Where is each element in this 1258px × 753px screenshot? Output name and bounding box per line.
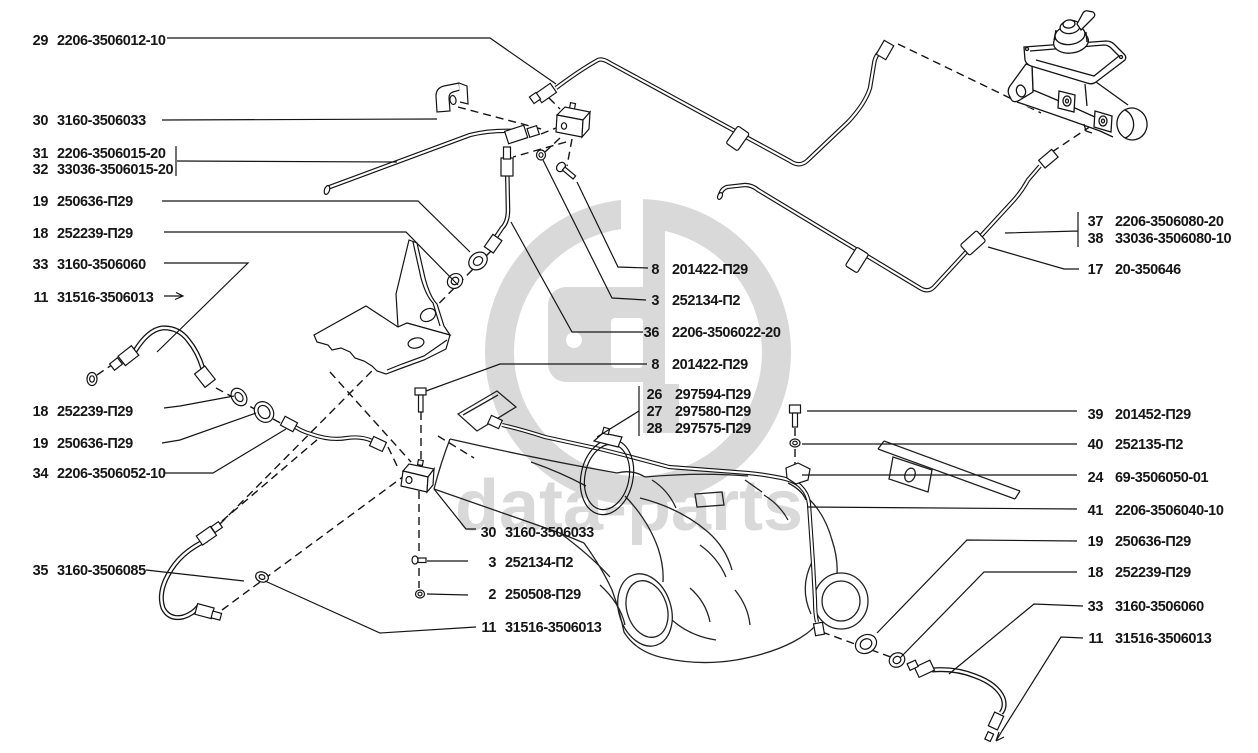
svg-text:33036-3506015-20: 33036-3506015-20	[57, 162, 173, 178]
svg-text:250636-П29: 250636-П29	[1115, 534, 1191, 550]
svg-text:8: 8	[651, 262, 659, 278]
svg-text:2: 2	[488, 587, 496, 603]
svg-text:11: 11	[481, 620, 496, 636]
svg-text:252135-П2: 252135-П2	[1115, 437, 1183, 453]
svg-text:2206-3506012-10: 2206-3506012-10	[57, 33, 166, 49]
svg-text:28: 28	[647, 421, 663, 437]
svg-text:201422-П29: 201422-П29	[672, 262, 748, 278]
svg-text:3160-3506060: 3160-3506060	[1115, 599, 1204, 615]
svg-text:26: 26	[647, 387, 663, 403]
svg-text:31516-3506013: 31516-3506013	[1115, 631, 1212, 647]
svg-text:2206-3506080-20: 2206-3506080-20	[1115, 214, 1224, 230]
svg-text:35: 35	[33, 563, 49, 579]
svg-text:297580-П29: 297580-П29	[675, 404, 751, 420]
svg-text:30: 30	[33, 113, 49, 129]
svg-text:2206-3506040-10: 2206-3506040-10	[1115, 503, 1224, 519]
svg-text:19: 19	[1088, 534, 1104, 550]
svg-text:33: 33	[1088, 599, 1104, 615]
svg-text:3160-3506033: 3160-3506033	[505, 525, 594, 541]
svg-text:30: 30	[481, 525, 497, 541]
svg-text:34: 34	[33, 466, 49, 482]
svg-text:20-350646: 20-350646	[1115, 262, 1181, 278]
svg-text:41: 41	[1088, 503, 1104, 519]
svg-text:36: 36	[644, 325, 660, 341]
svg-text:250508-П29: 250508-П29	[505, 587, 581, 603]
svg-text:250636-П29: 250636-П29	[57, 436, 133, 452]
svg-text:38: 38	[1088, 231, 1104, 247]
svg-text:27: 27	[647, 404, 663, 420]
svg-text:3: 3	[651, 293, 659, 309]
svg-text:33: 33	[33, 257, 49, 273]
svg-text:31516-3506013: 31516-3506013	[505, 620, 602, 636]
svg-text:201422-П29: 201422-П29	[672, 357, 748, 373]
svg-text:31516-3506013: 31516-3506013	[57, 290, 154, 306]
svg-text:3160-3506033: 3160-3506033	[57, 113, 146, 129]
svg-text:3160-3506085: 3160-3506085	[57, 563, 146, 579]
svg-text:2206-3506015-20: 2206-3506015-20	[57, 146, 166, 162]
svg-text:19: 19	[33, 194, 49, 210]
svg-text:252239-П29: 252239-П29	[57, 226, 133, 242]
svg-text:8: 8	[651, 357, 659, 373]
svg-text:2206-3506022-20: 2206-3506022-20	[672, 325, 781, 341]
svg-text:32: 32	[33, 162, 49, 178]
svg-text:11: 11	[1088, 631, 1103, 647]
svg-text:11: 11	[33, 290, 48, 306]
svg-text:33036-3506080-10: 33036-3506080-10	[1115, 231, 1231, 247]
svg-text:297575-П29: 297575-П29	[675, 421, 751, 437]
svg-text:18: 18	[33, 226, 49, 242]
svg-text:252239-П29: 252239-П29	[1115, 565, 1191, 581]
svg-text:40: 40	[1088, 437, 1104, 453]
svg-text:18: 18	[1088, 565, 1104, 581]
svg-text:18: 18	[33, 404, 49, 420]
svg-text:69-3506050-01: 69-3506050-01	[1115, 470, 1208, 486]
svg-text:252134-П2: 252134-П2	[672, 293, 740, 309]
svg-text:24: 24	[1088, 470, 1104, 486]
svg-text:3160-3506060: 3160-3506060	[57, 257, 146, 273]
svg-text:250636-П29: 250636-П29	[57, 194, 133, 210]
svg-text:201452-П29: 201452-П29	[1115, 407, 1191, 423]
svg-text:37: 37	[1088, 214, 1104, 230]
svg-text:31: 31	[33, 146, 49, 162]
svg-text:252239-П29: 252239-П29	[57, 404, 133, 420]
svg-text:297594-П29: 297594-П29	[675, 387, 751, 403]
svg-text:39: 39	[1088, 407, 1104, 423]
svg-text:19: 19	[33, 436, 49, 452]
svg-text:2206-3506052-10: 2206-3506052-10	[57, 466, 166, 482]
svg-text:29: 29	[33, 33, 49, 49]
svg-text:17: 17	[1088, 262, 1104, 278]
svg-text:3: 3	[488, 555, 496, 571]
svg-text:252134-П2: 252134-П2	[505, 555, 573, 571]
